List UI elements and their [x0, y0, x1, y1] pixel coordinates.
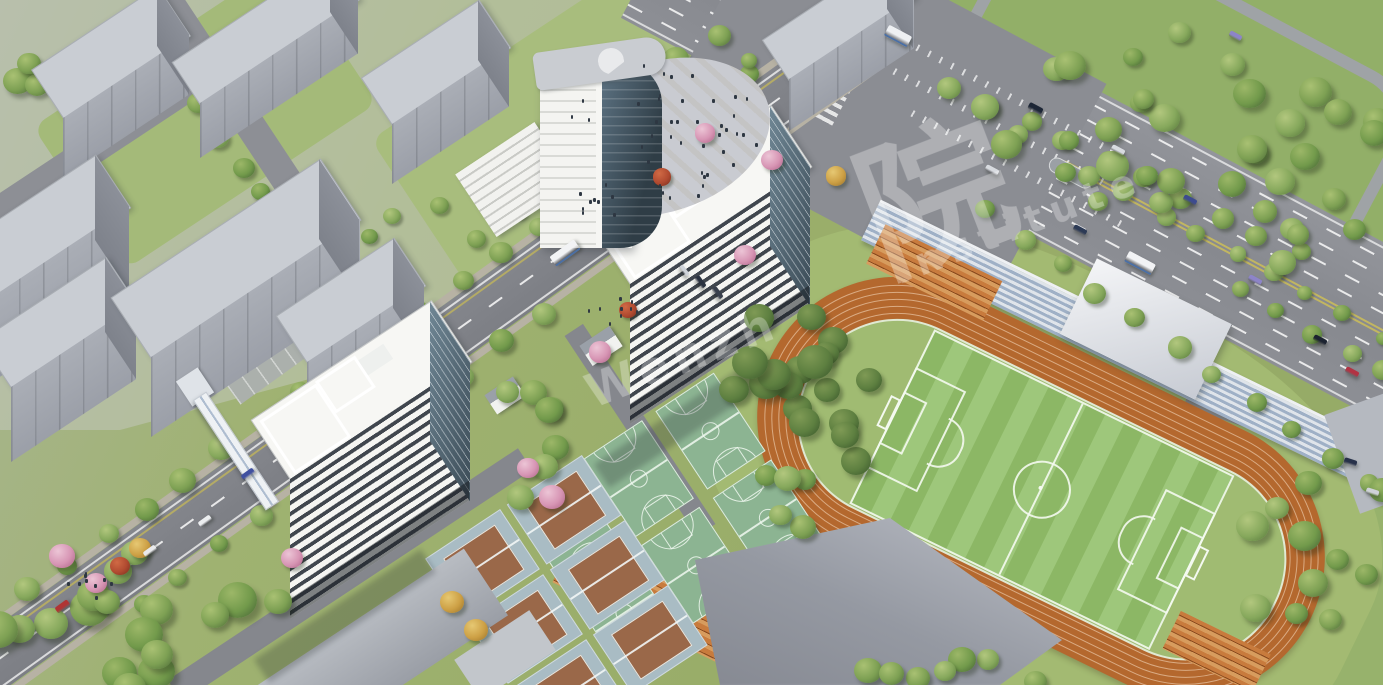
tree [464, 619, 487, 640]
person-dot [742, 133, 745, 137]
person-dot [655, 120, 658, 124]
person-dot [725, 128, 728, 132]
person-dot [718, 133, 721, 137]
tree [814, 378, 840, 402]
person-dot [110, 582, 113, 586]
tree [1319, 609, 1342, 630]
tree [264, 589, 292, 614]
person-dot [663, 72, 666, 76]
tree [1253, 200, 1278, 223]
tree [1322, 448, 1344, 468]
person-dot [619, 297, 622, 301]
tree [708, 25, 731, 47]
person-dot [706, 173, 709, 177]
campus-aerial-rendering: Wenzh 院 Institute [0, 0, 1383, 685]
tree [14, 577, 39, 600]
field-center-circle [1003, 451, 1081, 529]
tree [1157, 168, 1186, 194]
tree [906, 667, 929, 685]
tree [1054, 51, 1086, 80]
tree [1265, 168, 1295, 195]
tree [1149, 104, 1179, 132]
person-dot [720, 124, 723, 128]
person-dot [597, 200, 600, 204]
tree [653, 168, 672, 185]
person-dot [611, 195, 614, 199]
tree [1233, 79, 1265, 109]
tree [489, 329, 515, 353]
tree [250, 505, 272, 526]
admin-tower-glass-drum [602, 62, 662, 248]
person-dot [651, 134, 654, 138]
person-dot [697, 194, 700, 198]
tree [507, 485, 534, 510]
person-dot [691, 74, 694, 78]
person-dot [579, 192, 582, 196]
tree [539, 485, 564, 508]
tree [210, 535, 228, 552]
person-dot [637, 102, 640, 106]
tree [168, 569, 187, 586]
tree [1186, 225, 1205, 242]
tree [1333, 305, 1351, 322]
tree [1149, 192, 1172, 213]
tree [1237, 135, 1268, 163]
volleyball-court-inner [525, 470, 607, 549]
tree [496, 381, 519, 403]
tree [841, 447, 871, 475]
person-dot [630, 307, 633, 311]
tree [361, 229, 377, 244]
tree [489, 242, 512, 263]
person-dot [676, 120, 679, 124]
tree [1343, 345, 1362, 362]
person-dot [85, 579, 88, 583]
tree [1218, 171, 1246, 197]
tree [1212, 208, 1234, 228]
person-dot [593, 198, 596, 202]
tree [1285, 603, 1308, 624]
tree [110, 557, 130, 575]
volleyball-court-inner [568, 535, 650, 614]
tree [1240, 594, 1271, 622]
tree [1275, 109, 1305, 136]
person-dot [670, 120, 673, 124]
person-dot [696, 120, 699, 124]
tree [734, 245, 756, 265]
tree [1269, 250, 1296, 275]
tree [517, 458, 538, 478]
tree [1168, 22, 1191, 43]
tree [1360, 120, 1383, 146]
tree [1322, 188, 1346, 210]
tree [769, 505, 792, 526]
tree [1247, 393, 1268, 412]
person-dot [662, 191, 665, 195]
tree [1295, 471, 1321, 495]
person-dot [620, 307, 623, 311]
tree [1298, 569, 1328, 597]
tree [695, 123, 716, 142]
person-dot [94, 584, 97, 588]
person-dot [755, 143, 758, 147]
tree [1095, 117, 1122, 142]
person-dot [702, 144, 705, 148]
tree [233, 158, 255, 178]
person-dot [746, 97, 749, 101]
tree [1288, 521, 1321, 551]
person-dot [599, 307, 602, 311]
person-dot [613, 213, 616, 217]
person-dot [703, 175, 706, 179]
tree [440, 591, 463, 613]
person-dot [734, 95, 737, 99]
tree [761, 150, 783, 170]
person-dot [67, 582, 70, 586]
person-dot [78, 582, 81, 586]
person-dot [588, 309, 591, 313]
tree [135, 498, 160, 521]
tree [1054, 255, 1073, 272]
tree [34, 608, 68, 639]
person-dot [681, 99, 684, 103]
tree [1083, 283, 1106, 304]
tree [1326, 549, 1349, 570]
tree [1290, 143, 1320, 170]
tree [535, 397, 563, 423]
person-dot [609, 322, 612, 326]
tree [1230, 246, 1246, 261]
person-dot [103, 578, 106, 582]
tree [797, 345, 833, 378]
person-dot [670, 75, 673, 79]
person-dot [722, 150, 725, 154]
tree [532, 303, 556, 325]
tree [1168, 336, 1192, 358]
person-dot [589, 200, 592, 204]
tree [831, 422, 858, 447]
tree [1245, 226, 1267, 246]
tree [1059, 131, 1079, 149]
tree [201, 602, 229, 628]
volleyball-court-inner [611, 601, 693, 680]
tree [977, 649, 999, 670]
person-dot [582, 99, 585, 103]
person-dot [732, 163, 735, 167]
tree [1355, 564, 1378, 585]
person-dot [647, 160, 650, 164]
tree [49, 544, 74, 567]
